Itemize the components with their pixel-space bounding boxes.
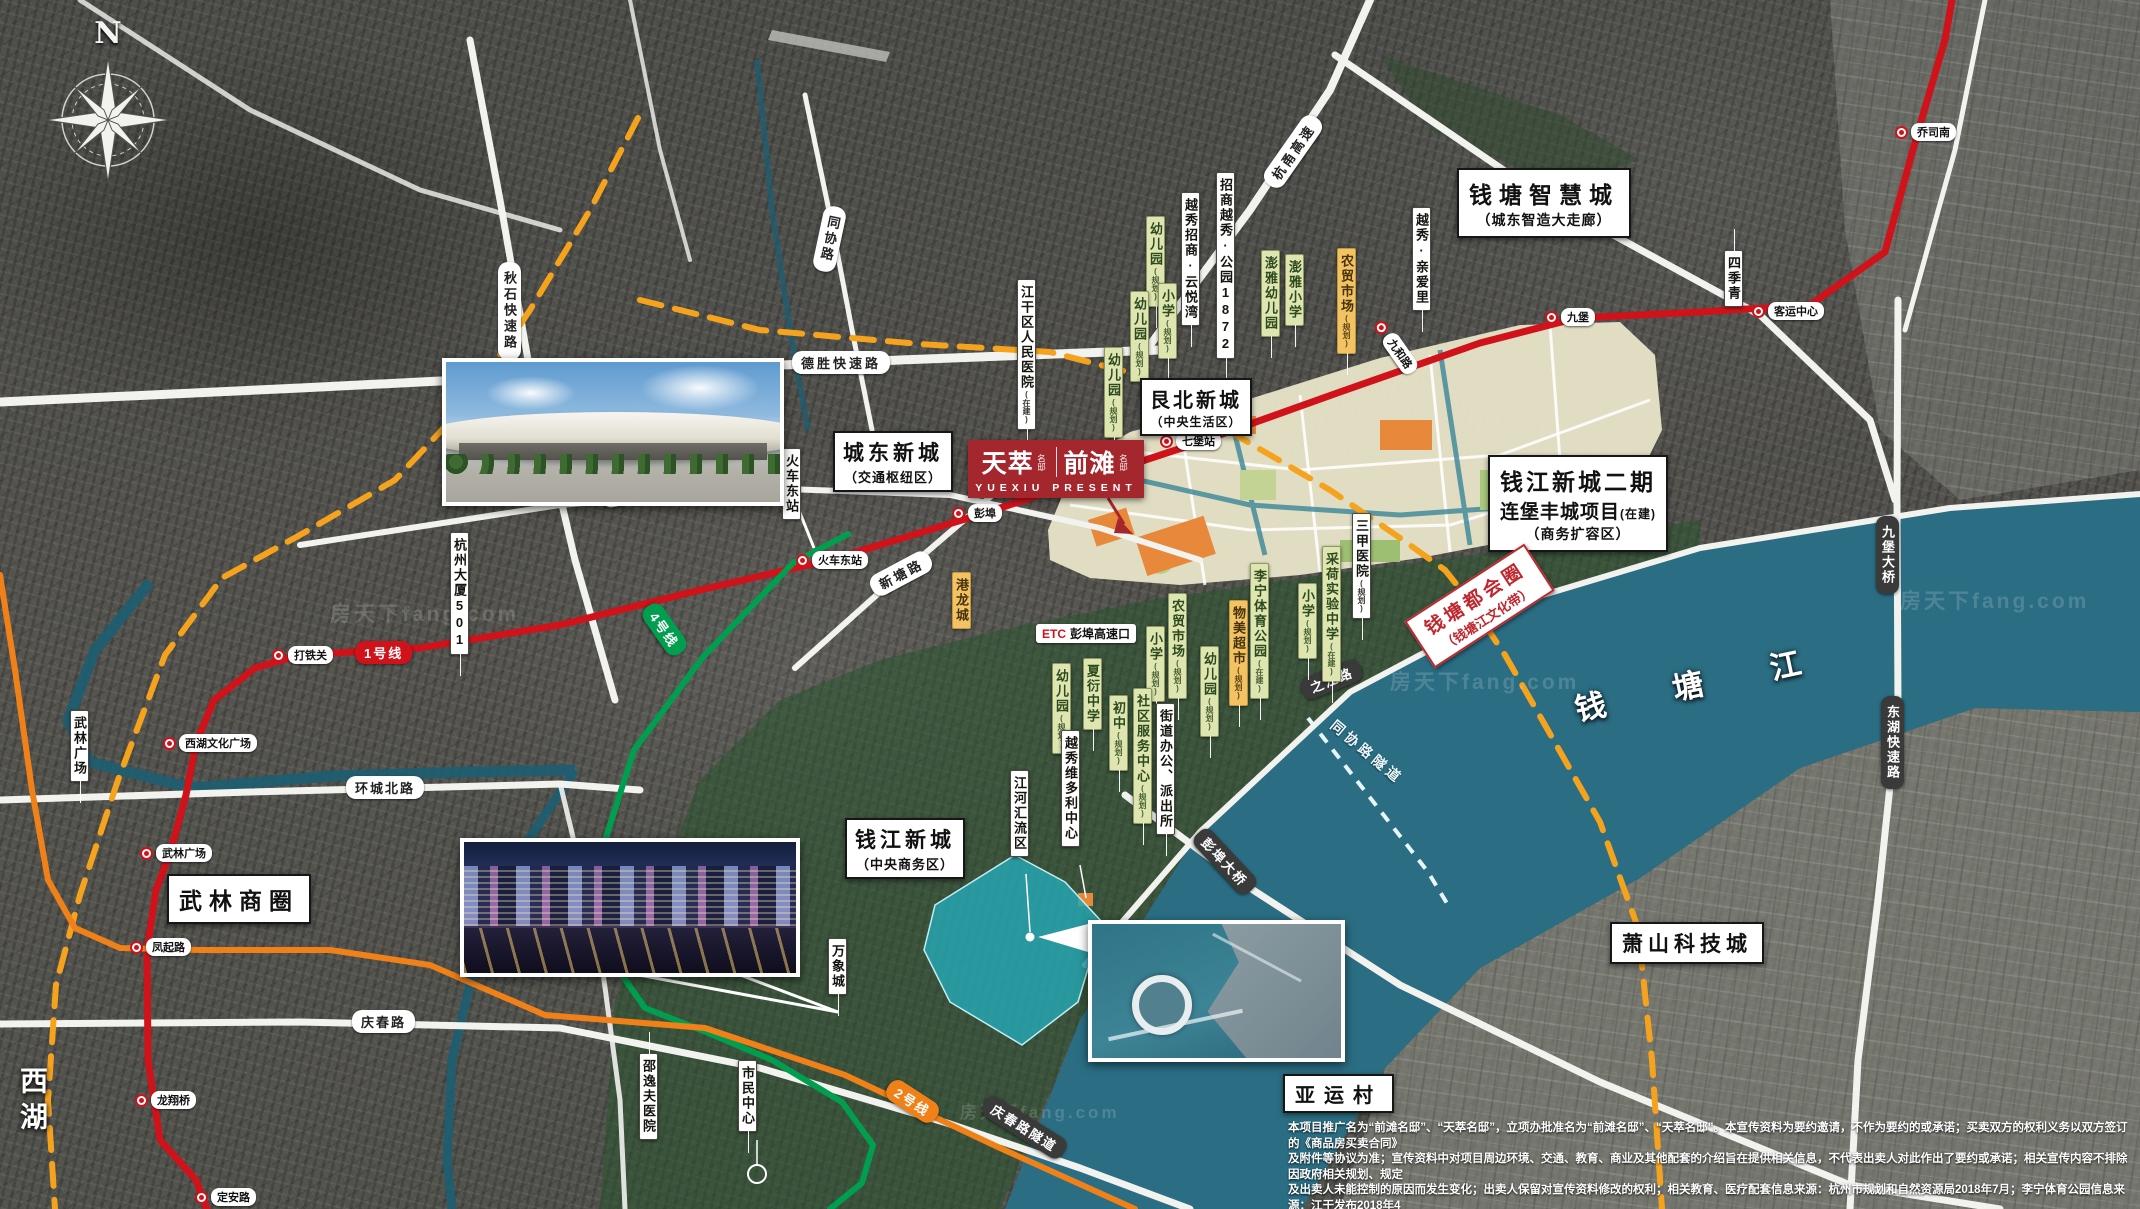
district-xiaoshan-tech: 萧山科技城 <box>1610 922 1764 964</box>
poi-sijiqing: 四季青 <box>1724 250 1743 307</box>
photo-night-cbd <box>460 838 800 977</box>
runway <box>768 30 890 62</box>
metro-icon <box>140 847 153 860</box>
poi-pengya-kindergarten: 澎雅幼儿园 <box>1261 250 1280 337</box>
poi-caihe-middle-school: 采荷实验中学(在建) <box>1322 546 1341 682</box>
district-qiantang-smart-city: 钱塘智慧城 （城东智造大走廊） <box>1457 168 1631 238</box>
poi-street-office-police: 街道办公、派出所 <box>1156 703 1175 835</box>
road-desheng-expressway: 德胜快速路 <box>792 351 890 374</box>
metro-icon <box>195 1191 208 1204</box>
disclaimer-line: 及出卖人未能控制的原因而发生变化；出卖人保留对宣传资料修改的权利；相关教育、医疗… <box>1288 1183 2136 1209</box>
metro-icon <box>163 737 176 750</box>
poi-junior-high: 初中(规划) <box>1109 695 1128 771</box>
metro-icon <box>1752 305 1765 318</box>
poi-park1872: 招商越秀·公园1872 <box>1216 172 1235 359</box>
logo-brand1-suffix: 名邸 <box>1037 454 1046 471</box>
satellite-map: N 天萃 名邸 前滩 名邸 YUEXIU PRESENT 钱塘智慧城 （城东智造… <box>0 0 2140 1209</box>
station-east-railway: 火车东站 <box>796 551 868 569</box>
poi-kindergarten: 幼儿园(规划) <box>1200 646 1219 737</box>
compass-n-letter: N <box>94 16 121 51</box>
station-xihu-culture-square: 西湖文化广场 <box>163 734 257 752</box>
logo-brand2: 前滩 <box>1064 444 1116 480</box>
station-datieguan: 打铁关 <box>272 646 333 664</box>
poi-farmers-market: 农贸市场(规划) <box>1337 248 1356 354</box>
road-donghu-expressway: 东湖快速路 <box>1881 696 1904 789</box>
aerial-land <box>1187 920 1345 1062</box>
district-qianjiang-newtown: 钱江新城 （中央商务区） <box>845 818 965 879</box>
metro-icon <box>135 1094 148 1107</box>
metro-icon <box>130 941 143 954</box>
poi-jianghe-confluence: 江河汇流区 <box>1010 770 1029 857</box>
station-longxiangqiao: 龙翔桥 <box>135 1091 196 1109</box>
poi-wumei-supermarket: 物美超市(规划) <box>1229 600 1248 706</box>
logo-divider <box>1056 447 1057 477</box>
district-wulin: 武林商圈 <box>167 874 311 924</box>
poi-qinaili: 越秀·亲爱里 <box>1412 207 1431 311</box>
poi-kindergarten: 幼儿园(规划) <box>1104 347 1123 438</box>
poi-yunyuewan: 越秀招商·云悦湾 <box>1181 192 1200 326</box>
logo-subtitle: YUEXIU PRESENT <box>975 482 1137 494</box>
station-qiaosi-south: 乔司南 <box>1895 123 1956 141</box>
metro-icon <box>1895 126 1908 139</box>
station-wulin-square: 武林广场 <box>140 844 212 862</box>
metro-icon <box>952 507 965 520</box>
watermark: 房天下fang.com <box>330 598 519 628</box>
road-jiubao-bridge: 九堡大桥 <box>1876 516 1899 594</box>
greenery <box>446 454 780 474</box>
project-logo: 天萃 名邸 前滩 名邸 YUEXIU PRESENT <box>968 440 1144 498</box>
label-etc-gate: ETC彭埠高速口 <box>1036 624 1136 643</box>
cloud <box>640 365 760 411</box>
poi-yuexiu-victory-center: 越秀维多利中心 <box>1061 730 1080 847</box>
metro-icon <box>1545 311 1558 324</box>
compass-north: N <box>48 22 168 172</box>
district-genbei: 艮北新城 （中央生活区） <box>1140 378 1252 436</box>
poi-ganglong-city: 港龙城 <box>952 572 971 629</box>
lit-windows <box>464 866 796 926</box>
metro-icon <box>1160 435 1173 448</box>
photo-aerial-waterfront <box>1088 920 1345 1062</box>
label-west-lake: 西湖 <box>12 1066 52 1138</box>
metro-icon <box>796 554 809 567</box>
night-street <box>464 928 796 973</box>
disclaimer-line: 本项目推广名为“前滩名邸”、“天萃名邸”，立项办批准名为“前滩名邸”、“天萃名邸… <box>1288 1121 2136 1152</box>
logo-brand1: 天萃 <box>982 444 1034 480</box>
poi-mixc-mall: 万象城 <box>828 938 847 995</box>
poi-pengya-primary: 澎雅小学 <box>1285 254 1304 326</box>
poi-primary-school: 小学(规划) <box>1158 283 1177 359</box>
metro-icon <box>272 649 285 662</box>
poi-hangzhou-tower-501: 杭州大厦501 <box>450 532 469 655</box>
poi-srrsh-hospital: 邵逸夫医院 <box>639 1053 658 1140</box>
poi-jianggan-hospital: 江干区人民医院(在建) <box>1017 279 1036 430</box>
district-qianjiang-newtown-2: 钱江新城二期 连堡丰城项目(在建) （商务扩容区） <box>1488 455 1668 552</box>
station-fengqi-road: 凤起路 <box>130 938 191 956</box>
cloud <box>486 376 576 410</box>
poi-east-station: 火车东站 <box>782 448 801 520</box>
district-yayuncun: 亚运村 <box>1283 1074 1394 1113</box>
poi-xiayan-middle-school: 夏衍中学 <box>1083 658 1102 730</box>
watermark: 房天下fang.com <box>1900 585 2089 615</box>
poi-primary-school: 小学(规划) <box>1298 583 1317 659</box>
poi-kindergarten: 幼儿园(规划) <box>1130 291 1149 382</box>
poi-community-service-center: 社区服务中心(规划) <box>1133 688 1152 824</box>
badge-metro-line1: 1号线 <box>355 641 412 664</box>
district-chengdong: 城东新城 （交通枢纽区） <box>833 431 953 492</box>
station-coach-center: 客运中心 <box>1752 302 1824 320</box>
map-artwork <box>0 0 2140 1209</box>
disclaimer-line: 及附件等协议为准；宣传资料中对项目周边环境、交通、教育、商业及其他配套的介绍旨在… <box>1288 1152 2136 1183</box>
road-qiushi-expressway: 秋石快速路 <box>498 262 521 360</box>
poi-lining-sports-park: 李宁体育公园(在建) <box>1250 563 1269 699</box>
station-pengbu: 彭埠 <box>952 504 1002 522</box>
station-dinganlu: 定安路 <box>195 1188 256 1206</box>
photo-east-station <box>442 358 784 506</box>
poi-wulin-square: 武林广场 <box>70 710 89 782</box>
watermark: 房天下fang.com <box>1390 666 1579 696</box>
poi-3a-hospital: 三甲医院(规划) <box>1352 513 1371 619</box>
disclaimer: 本项目推广名为“前滩名邸”、“天萃名邸”，立项办批准名为“前滩名邸”、“天萃名邸… <box>1288 1121 2136 1209</box>
poi-citizen-center: 市民中心 <box>738 1060 757 1132</box>
poi-farmers-market: 农贸市场(规划) <box>1168 593 1187 699</box>
road-huancheng-north: 环城北路 <box>346 776 424 799</box>
logo-brand2-suffix: 名邸 <box>1119 454 1128 471</box>
fields-green <box>1380 55 1640 185</box>
station-jiubao: 九堡 <box>1545 308 1595 326</box>
road-qingchun: 庆春路 <box>352 1010 415 1033</box>
